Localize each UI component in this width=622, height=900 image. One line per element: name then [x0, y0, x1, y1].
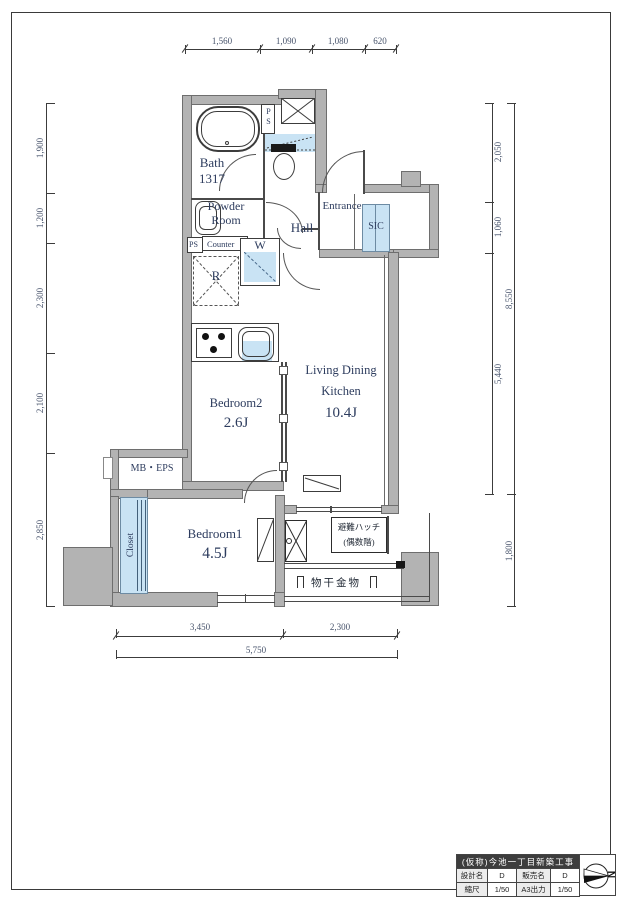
bedroom2-size: 2.6J: [210, 414, 263, 432]
window-ldk-bottom-2: [296, 511, 382, 512]
north-arrow-box: N: [579, 854, 616, 896]
wall-left: [183, 96, 191, 490]
dim-line-right-outer: [514, 103, 515, 607]
dim-left-3: 2,300: [35, 288, 45, 308]
bathtub-drain: [225, 141, 229, 145]
wall-bedroom1-right: [276, 496, 284, 606]
dim-left-2: 1,200: [35, 208, 45, 228]
bedroom1-furniture-icon: [257, 518, 274, 562]
ldk-counter-icon: [303, 475, 341, 492]
dim-tick: [485, 103, 494, 104]
dim-bottom-total: 5,750: [246, 645, 266, 655]
wall-ldk-right: [389, 253, 398, 513]
powder-line2: Room: [208, 213, 245, 227]
dim-right-outer-1: 8,550: [504, 289, 514, 309]
dim-tick: [507, 606, 516, 607]
laundry-bracket-right: [370, 576, 377, 588]
stove-burner-2: [218, 333, 225, 340]
washer-diagonal-icon: [244, 252, 276, 282]
dim-right-outer-2: 1,800: [504, 541, 514, 561]
dim-left-5: 2,850: [35, 520, 45, 540]
dim-right-inner-3: 5,440: [493, 364, 503, 384]
dim-tick: [116, 650, 117, 659]
window-ldk-right-outer: [384, 255, 385, 506]
bedroom2-label: Bedroom2 2.6J: [210, 396, 263, 432]
title-block: (仮称)今池一丁目新築工事 設計名 D 販売名 D 縮尺 1/50 A3出力 1…: [456, 854, 580, 897]
dim-tick: [397, 650, 398, 659]
dim-top-1: 1,560: [212, 36, 232, 46]
toilet-bowl: [273, 153, 295, 180]
window-bedroom1-tick: [245, 594, 246, 603]
dim-tick: [46, 243, 55, 244]
balcony-rail-2: [284, 601, 430, 602]
title-cell: 設計名: [457, 869, 487, 882]
dim-right-inner-2: 1,060: [493, 217, 503, 237]
bedroom1-label: Bedroom1 4.5J: [188, 526, 243, 563]
wall-entrance-right: [430, 185, 438, 257]
ps-shaft-label-box: PS: [261, 104, 275, 134]
window-mullion: [330, 506, 332, 513]
wall-ldk-bottom-a: [283, 506, 296, 513]
exterior-step-block: [402, 172, 420, 186]
wall-closet-left: [111, 497, 118, 595]
dim-line-left: [46, 103, 47, 607]
ldk-size: 10.4J: [305, 404, 376, 422]
dim-tick: [46, 606, 55, 607]
exterior-block-left: [64, 548, 112, 605]
laundry-label: 物干金物: [311, 575, 361, 590]
stove: [196, 328, 232, 358]
balcony-partition: [387, 516, 389, 554]
bedroom2-name: Bedroom2: [210, 396, 263, 411]
wall-bedroom1-bottom-b: [275, 593, 284, 606]
closet-label: Closet: [126, 533, 136, 557]
title-cell: A3出力: [517, 883, 550, 896]
balcony-drain-box: [396, 561, 405, 568]
dim-tick: [46, 453, 55, 454]
wall-top: [183, 96, 283, 104]
exterior-block-right: [402, 553, 438, 605]
sic-label: SIC: [368, 221, 384, 233]
title-cell: D: [551, 869, 579, 882]
ldk-label: Living Dining Kitchen 10.4J: [305, 363, 376, 422]
dim-top-4: 620: [373, 36, 387, 46]
dim-line-bottom-1: [116, 636, 397, 637]
hatch-label-box: 避難ハッチ (偶数階): [331, 517, 387, 553]
dim-tick: [46, 193, 55, 194]
wall-entrance-bottom: [392, 250, 438, 257]
dim-tick: [485, 253, 494, 254]
kitchen-sink-inner: [242, 331, 270, 357]
powder-label: Powder Room: [208, 199, 245, 228]
meter-box: [103, 457, 113, 479]
north-letter: N: [605, 871, 616, 878]
balcony-rail-1: [284, 596, 430, 597]
title-cell: 1/50: [551, 883, 579, 896]
title-cell: D: [488, 869, 516, 882]
ps-small-box: PS: [187, 237, 203, 253]
counter-label: Counter: [207, 239, 234, 249]
dim-tick: [485, 494, 494, 495]
hatch-label-line2: (偶数階): [332, 536, 386, 548]
hall-label: Hall: [291, 220, 313, 236]
bedroom1-name: Bedroom1: [188, 526, 243, 542]
dim-tick: [485, 202, 494, 203]
wall-mbeps-top: [111, 450, 187, 457]
dim-bottom-2: 2,300: [330, 622, 350, 632]
stove-burner-3: [210, 346, 217, 353]
balcony-right-edge: [429, 513, 430, 601]
window-bedroom1-1: [217, 595, 275, 596]
closet-track-1: [137, 500, 138, 591]
laundry-bracket-left: [297, 576, 304, 588]
bedroom1-size: 4.5J: [188, 545, 243, 564]
dim-left-4: 2,100: [35, 393, 45, 413]
entrance-door-leaf: [363, 150, 365, 194]
dim-top-2: 1,090: [276, 36, 296, 46]
sliding-door-stud-2: [279, 414, 288, 423]
dim-top-3: 1,080: [328, 36, 348, 46]
fridge-label: R: [212, 268, 221, 284]
hatch-label-line1: 避難ハッチ: [332, 521, 386, 533]
toilet-tank: [271, 144, 296, 152]
duct-x-icon: [281, 98, 315, 124]
sliding-door-stud-3: [279, 462, 288, 471]
ldk-line2: Kitchen: [305, 384, 376, 399]
evacuation-hatch-icon: [285, 520, 307, 562]
balcony-divider-2: [284, 568, 404, 569]
title-cell: 1/50: [488, 883, 516, 896]
wall-entrance-top-b: [364, 185, 438, 192]
dim-line-bottom-2: [116, 657, 397, 658]
mbeps-label: MB・EPS: [131, 463, 174, 475]
window-bedroom1-2: [217, 602, 275, 603]
closet-track-3: [145, 500, 146, 591]
project-title: (仮称)今池一丁目新築工事: [457, 855, 579, 868]
dim-tick: [507, 103, 516, 104]
wall-bedroom1-top: [148, 490, 242, 498]
stove-burner-1: [202, 333, 209, 340]
wall-ldk-bottom-b: [382, 506, 398, 513]
dim-left-1: 1,900: [35, 138, 45, 158]
ps-small-label: PS: [189, 240, 198, 249]
window-ldk-bottom-1: [296, 507, 382, 508]
wall-bedroom1-bottom-a: [111, 593, 217, 606]
title-cell: 販売名: [517, 869, 550, 882]
dim-tick: [46, 103, 55, 104]
dim-tick: [46, 353, 55, 354]
balcony-divider-1: [284, 563, 404, 564]
sliding-door-stud-1: [279, 366, 288, 375]
ldk-line1: Living Dining: [305, 363, 376, 378]
wall-hall-entrance: [318, 192, 320, 250]
powder-line1: Powder: [208, 199, 245, 213]
window-ldk-right-inner: [388, 255, 389, 506]
washer-label: W: [254, 238, 265, 252]
floor-plan-sheet: PS PS Counter W R: [0, 0, 622, 900]
title-cell: 縮尺: [457, 883, 487, 896]
dim-bottom-1: 3,450: [190, 622, 210, 632]
bath-name: Bath: [199, 155, 225, 171]
entrance-label: Entrance: [322, 200, 361, 213]
bath-code: 1317: [199, 171, 225, 187]
dim-right-inner-1: 2,050: [493, 142, 503, 162]
closet-track-2: [141, 500, 142, 591]
ps-shaft-label: PS: [264, 107, 273, 127]
bath-label: Bath 1317: [199, 155, 225, 186]
dim-tick: [507, 494, 516, 495]
